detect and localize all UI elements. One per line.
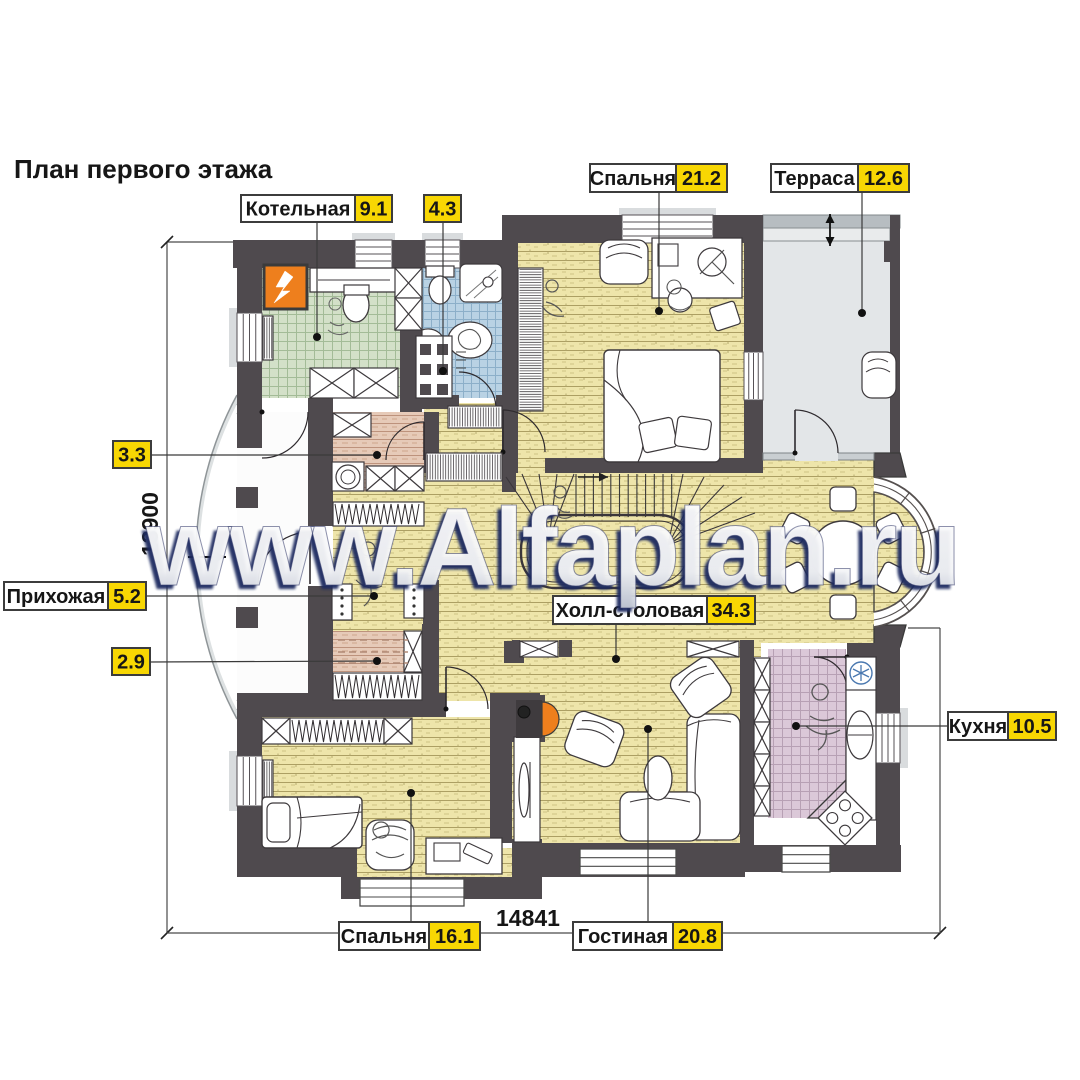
svg-text:10.5: 10.5 xyxy=(1013,716,1052,738)
svg-text:Спальня: Спальня xyxy=(590,168,676,190)
svg-text:12.6: 12.6 xyxy=(864,168,903,190)
svg-text:14841: 14841 xyxy=(496,905,560,931)
svg-text:4.3: 4.3 xyxy=(429,199,457,221)
svg-text:Терраса: Терраса xyxy=(774,168,855,190)
svg-text:16.1: 16.1 xyxy=(435,926,474,948)
svg-text:План первого этажа: План первого этажа xyxy=(14,154,273,184)
svg-text:www.Alfaplan.ru: www.Alfaplan.ru xyxy=(145,486,959,609)
svg-text:5.2: 5.2 xyxy=(113,586,141,608)
svg-text:Кухня: Кухня xyxy=(949,716,1007,738)
svg-text:Гостиная: Гостиная xyxy=(578,926,668,948)
svg-text:Спальня: Спальня xyxy=(341,926,427,948)
svg-text:Прихожая: Прихожая xyxy=(7,586,106,608)
svg-text:20.8: 20.8 xyxy=(678,926,717,948)
svg-text:Котельная: Котельная xyxy=(246,199,351,221)
svg-text:2.9: 2.9 xyxy=(117,652,145,674)
svg-text:21.2: 21.2 xyxy=(682,168,721,190)
svg-text:9.1: 9.1 xyxy=(360,199,388,221)
svg-text:3.3: 3.3 xyxy=(118,445,146,467)
